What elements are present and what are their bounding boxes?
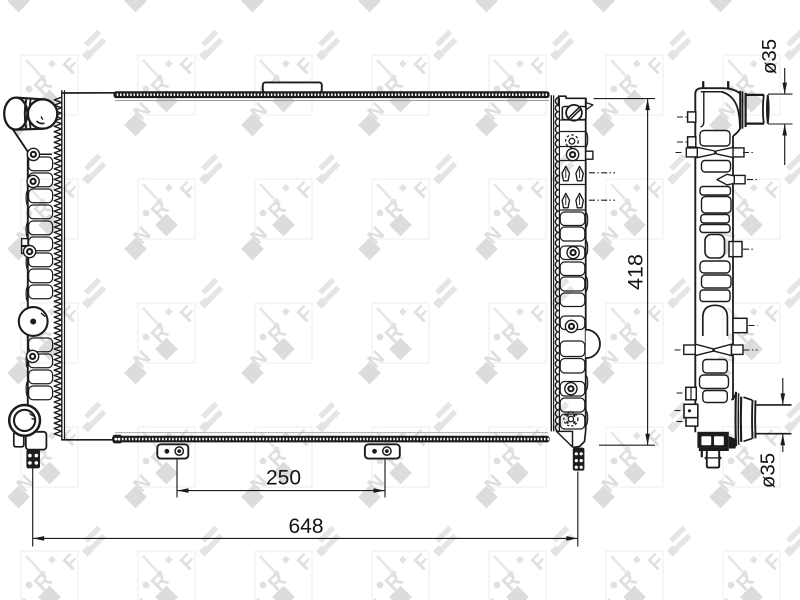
- svg-text:ø35: ø35: [758, 39, 781, 74]
- svg-text:ø35: ø35: [757, 453, 780, 488]
- svg-text:418: 418: [624, 254, 648, 290]
- svg-text:250: 250: [266, 466, 301, 489]
- svg-text:648: 648: [288, 515, 323, 538]
